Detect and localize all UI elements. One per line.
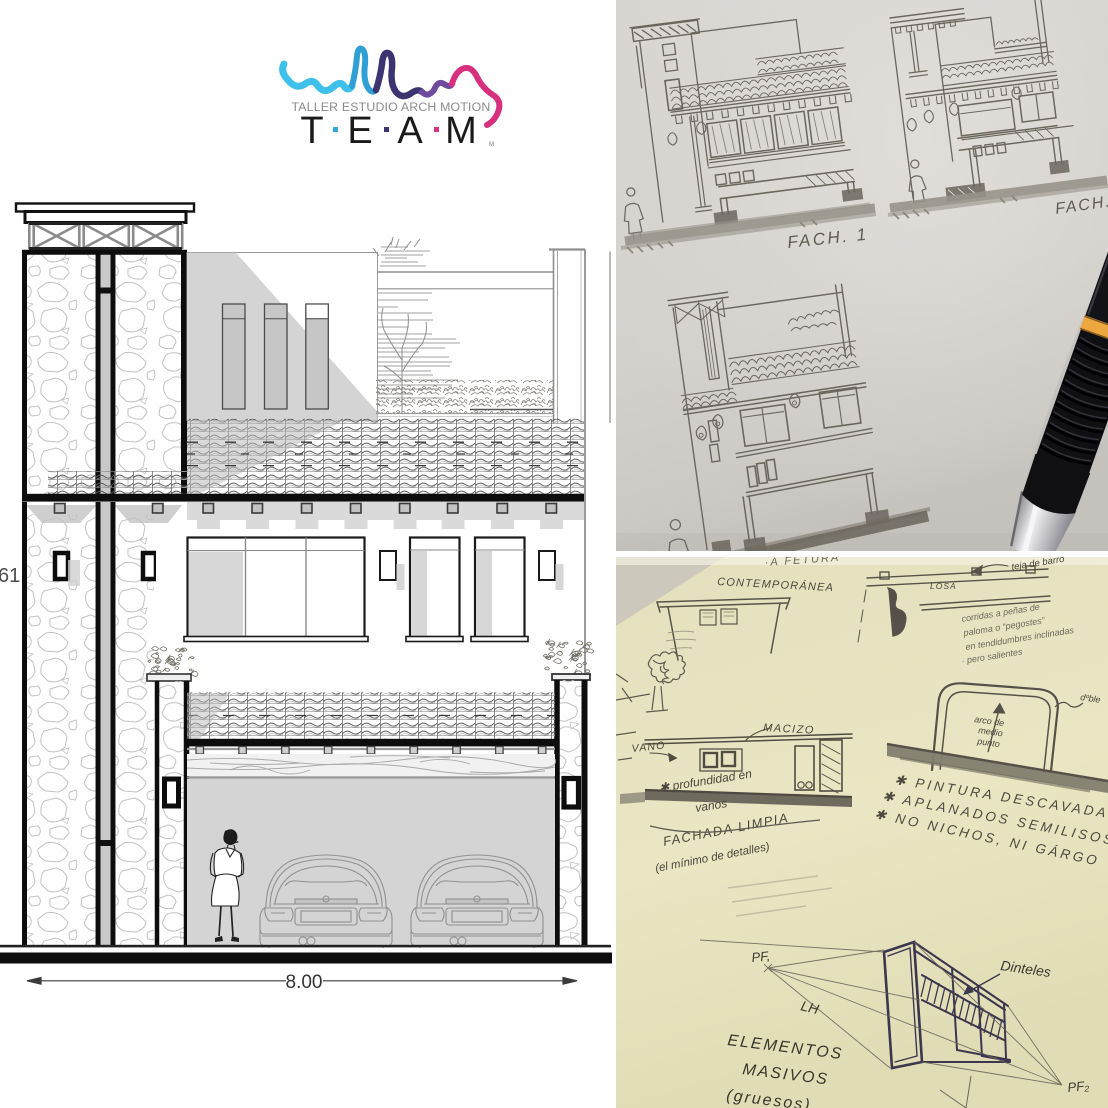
svg-text:LOSA: LOSA [930,581,957,591]
svg-text:PF₂: PF₂ [1067,1078,1090,1095]
svg-text:M: M [489,142,494,148]
svg-text:T: T [300,110,323,152]
svg-text:A: A [397,110,423,152]
svg-text:61: 61 [0,565,20,587]
svg-text:M: M [445,110,477,152]
svg-text:E: E [347,110,372,152]
svg-text:PF,: PF, [751,948,771,965]
svg-text:8.00: 8.00 [286,972,323,993]
